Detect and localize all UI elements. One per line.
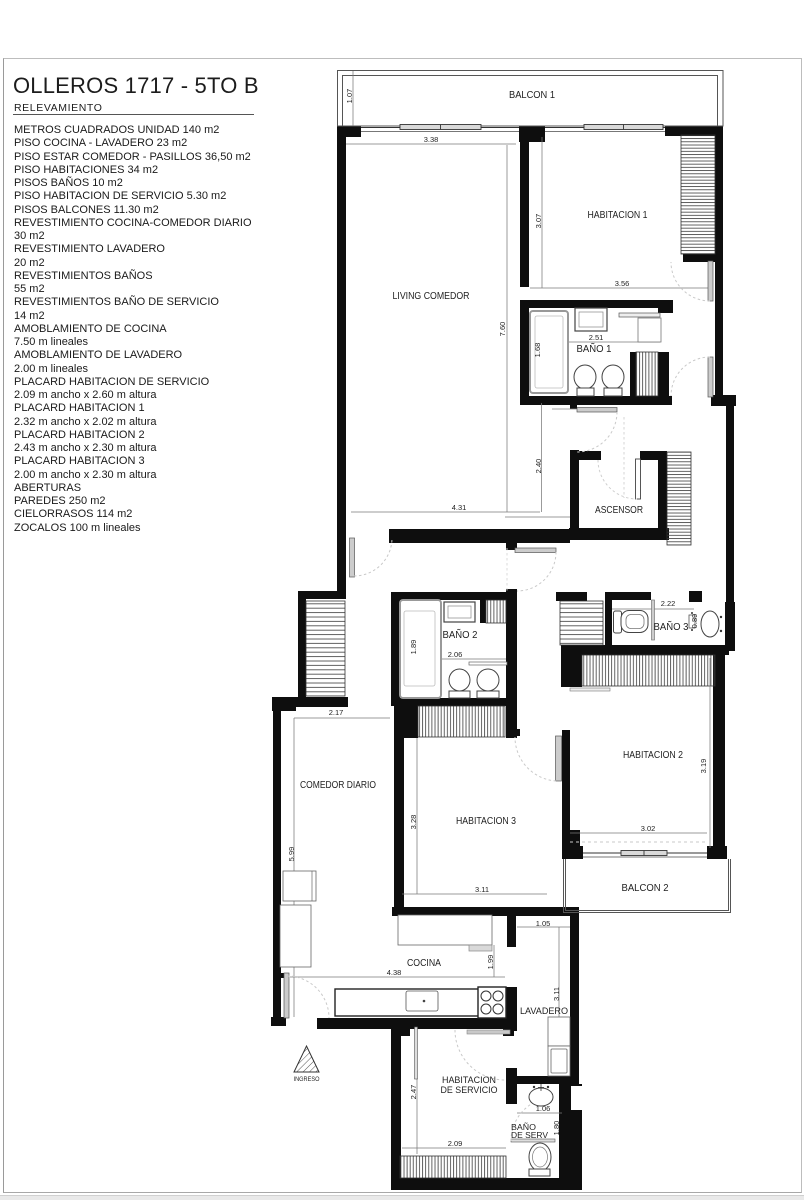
svg-text:COMEDOR DIARIO: COMEDOR DIARIO [300, 780, 376, 791]
svg-text:LAVADERO: LAVADERO [520, 1006, 568, 1016]
svg-text:0.89: 0.89 [690, 614, 699, 629]
svg-text:4.38: 4.38 [387, 968, 402, 977]
svg-text:COCINA: COCINA [407, 958, 441, 969]
svg-text:BALCON 1: BALCON 1 [509, 90, 555, 101]
svg-text:BAÑO 2: BAÑO 2 [443, 630, 478, 641]
svg-text:BAÑO 3: BAÑO 3 [654, 622, 689, 633]
svg-text:1.68: 1.68 [533, 343, 542, 358]
svg-text:7.60: 7.60 [498, 322, 507, 337]
svg-text:3.56: 3.56 [615, 279, 630, 288]
svg-text:4.31: 4.31 [452, 503, 467, 512]
svg-text:1.05: 1.05 [536, 919, 551, 928]
svg-text:1.99: 1.99 [486, 955, 495, 970]
svg-text:1.80: 1.80 [552, 1121, 561, 1136]
svg-text:3.38: 3.38 [424, 135, 439, 144]
svg-text:2.51: 2.51 [589, 333, 604, 342]
svg-text:1.89: 1.89 [409, 640, 418, 655]
svg-text:LIVING COMEDOR: LIVING COMEDOR [393, 291, 470, 302]
svg-text:2.47: 2.47 [409, 1085, 418, 1100]
svg-text:DE SERV: DE SERV [511, 1131, 549, 1140]
svg-text:2.09: 2.09 [448, 1139, 463, 1148]
svg-text:2.22: 2.22 [661, 599, 676, 608]
svg-text:ASCENSOR: ASCENSOR [595, 505, 643, 516]
svg-text:3.11: 3.11 [552, 987, 561, 1001]
svg-text:3.02: 3.02 [641, 824, 656, 833]
svg-text:BAÑO 1: BAÑO 1 [577, 344, 612, 355]
svg-text:5.99: 5.99 [287, 847, 296, 862]
svg-text:HABITACION 1: HABITACION 1 [588, 210, 648, 221]
svg-text:HABITACION 3: HABITACION 3 [456, 816, 516, 827]
svg-text:3.19: 3.19 [699, 759, 708, 774]
svg-text:HABITACION 2: HABITACION 2 [623, 750, 683, 761]
svg-text:BALCON 2: BALCON 2 [622, 883, 669, 894]
svg-text:1.07: 1.07 [345, 89, 354, 104]
svg-text:DE SERVICIO: DE SERVICIO [441, 1085, 498, 1096]
svg-text:2.40: 2.40 [534, 459, 543, 474]
svg-text:3.07: 3.07 [534, 214, 543, 229]
svg-text:1.06: 1.06 [536, 1104, 551, 1113]
svg-text:3.11: 3.11 [475, 885, 489, 894]
svg-text:2.06: 2.06 [448, 650, 463, 659]
svg-text:3.28: 3.28 [409, 815, 418, 830]
svg-text:INGRESO: INGRESO [294, 1076, 320, 1083]
svg-text:2.17: 2.17 [329, 708, 344, 717]
